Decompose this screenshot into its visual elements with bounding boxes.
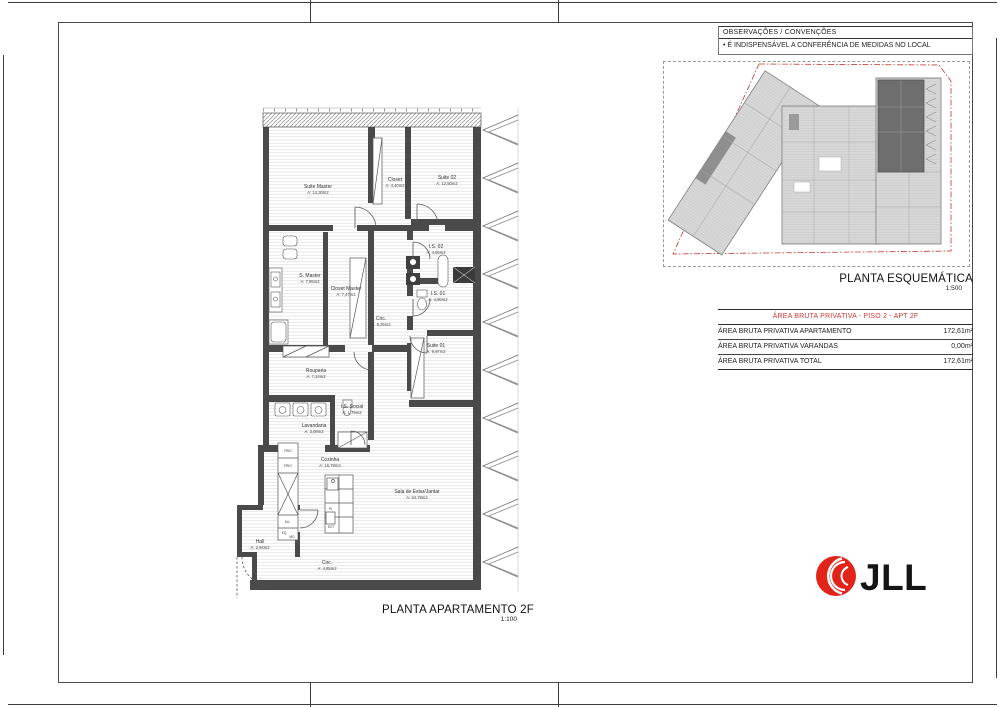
central-block bbox=[782, 106, 880, 244]
room-area: A: 2,94m2 bbox=[250, 545, 270, 550]
exterior-wall-top bbox=[263, 113, 481, 127]
room-area: A: 4,85m2 bbox=[317, 566, 337, 571]
room-area: A: 7,85m2 bbox=[300, 279, 320, 284]
row-value: 172,61m² bbox=[943, 355, 973, 369]
fold-mark bbox=[310, 0, 311, 22]
building-schematic bbox=[664, 62, 969, 266]
jll-logo-text: JLL bbox=[860, 557, 927, 598]
area-table-title: ÁREA BRUTA PRIVATIVA - PISO 2 - APT 2F bbox=[718, 310, 973, 325]
equip-label: MO bbox=[289, 535, 295, 539]
row-value: 172,61m² bbox=[943, 325, 973, 339]
table-row: ÁREA BRUTA PRIVATIVA VARANDAS 0,00m² bbox=[718, 340, 973, 355]
island-label: EXT bbox=[328, 525, 334, 529]
table-row: ÁREA BRUTA PRIVATIVA APARTAMENTO 172,61m… bbox=[718, 325, 973, 340]
fold-mark bbox=[310, 683, 311, 707]
room-area: A: 8,25m2 bbox=[371, 322, 391, 327]
schematic-title: PLANTA ESQUEMÁTICA bbox=[700, 273, 973, 285]
room-area: A: 4,40m2 bbox=[385, 183, 405, 188]
right-block bbox=[876, 78, 941, 244]
room-area: A: 9,97m2 bbox=[426, 349, 446, 354]
room-area: A: 4,65m2 bbox=[426, 250, 446, 255]
table-row: ÁREA BRUTA PRIVATIVA TOTAL 172,61m² bbox=[718, 355, 973, 370]
observations-title: OBSERVAÇÕES / CONVENÇÕES bbox=[719, 27, 972, 39]
fold-mark bbox=[558, 683, 559, 707]
fold-mark bbox=[558, 0, 559, 22]
room-area: A: 14,30m2 bbox=[307, 190, 329, 195]
trim-line-right bbox=[996, 38, 997, 678]
island-label: P.I. bbox=[329, 507, 333, 511]
washer-label: M.L. bbox=[285, 520, 291, 524]
apartment-floor-plan: Suite Master A: 14,30m2 Closet A: 4,40m2… bbox=[225, 100, 530, 600]
fridge-label: FRIG bbox=[284, 449, 292, 453]
room-area: A: 3,08m2 bbox=[304, 429, 324, 434]
room-area: A: 12,50m2 bbox=[436, 181, 458, 186]
room-area: A: 7,24m2 bbox=[306, 374, 326, 379]
row-value: 0,00m² bbox=[951, 340, 973, 354]
schematic-scale: 1:500 bbox=[700, 285, 962, 292]
facade-glazing bbox=[483, 108, 518, 592]
jll-logo: JLL bbox=[812, 549, 942, 603]
plan-scale: 1:100 bbox=[350, 616, 517, 623]
appliance-column bbox=[278, 443, 298, 540]
observations-note: • É INDISPENSÁVEL A CONFERÊNCIA DE MEDID… bbox=[719, 39, 972, 54]
trim-line-bottom bbox=[8, 704, 997, 705]
room-area: A: 1,79m2 bbox=[342, 410, 362, 415]
area-table: ÁREA BRUTA PRIVATIVA - PISO 2 - APT 2F Á… bbox=[718, 309, 973, 370]
room-area: A: 16,78m2 bbox=[319, 463, 341, 468]
trim-line-left bbox=[3, 55, 4, 655]
schematic-panel bbox=[663, 61, 970, 267]
jll-logo-mark bbox=[816, 556, 856, 596]
observations-box: OBSERVAÇÕES / CONVENÇÕES • É INDISPENSÁV… bbox=[718, 26, 973, 55]
plan-title: PLANTA APARTAMENTO 2F bbox=[350, 604, 566, 616]
fridge-label: FRIG bbox=[284, 464, 292, 468]
trim-line-top bbox=[8, 2, 997, 3]
room-area: A: 4,96m2 bbox=[428, 297, 448, 302]
row-label: ÁREA BRUTA PRIVATIVA APARTAMENTO bbox=[718, 325, 852, 339]
room-area: A: 7,47m2 bbox=[336, 292, 356, 297]
room-area: A: 34,78m2 bbox=[406, 495, 428, 500]
drawing-sheet: Suite Master A: 14,30m2 Closet A: 4,40m2… bbox=[0, 0, 1000, 707]
equip-label: EQ bbox=[282, 531, 287, 535]
row-label: ÁREA BRUTA PRIVATIVA VARANDAS bbox=[718, 340, 838, 354]
row-label: ÁREA BRUTA PRIVATIVA TOTAL bbox=[718, 355, 822, 369]
